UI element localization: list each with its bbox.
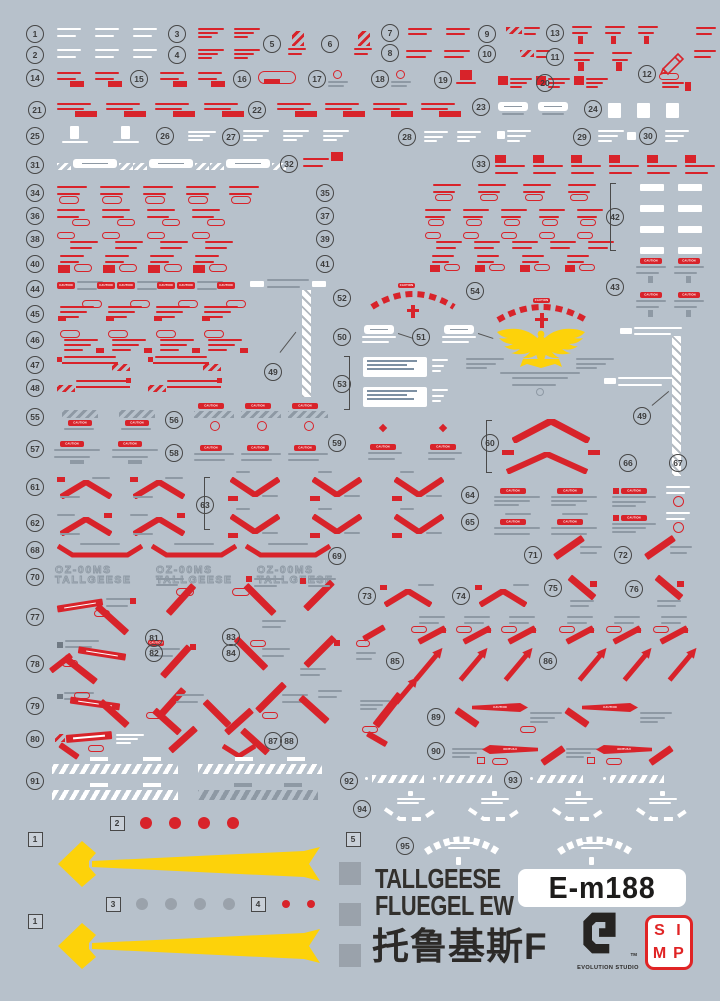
- micro-red-text-decal: [95, 72, 119, 80]
- white-block-decal: [660, 791, 665, 796]
- red-diagonal-stripe-decal: [95, 604, 129, 636]
- boxed-number-marker: 3: [106, 897, 121, 912]
- circled-number-marker: 60: [481, 434, 499, 452]
- micro-red-text-decal: [539, 209, 565, 218]
- red-diagonal-stripe-decal: [648, 745, 673, 766]
- striped-bar-decal: [52, 790, 178, 800]
- white-block-decal: [640, 247, 664, 254]
- micro-gray-text-decal: [530, 712, 562, 723]
- striped-bar-decal: [52, 764, 178, 774]
- dot-decal: [140, 817, 152, 829]
- micro-gray-text-decal: [505, 513, 531, 517]
- circled-number-marker: 51: [412, 328, 430, 346]
- simp-logo: S I M P: [645, 915, 693, 970]
- micro-gray-text-decal: [551, 527, 597, 535]
- red-pill-outline-decal: [520, 726, 536, 733]
- red-block-decal: [75, 111, 97, 117]
- micro-gray-text-decal: [661, 616, 687, 624]
- red-pill-outline-decal: [145, 196, 165, 204]
- red-block-decal: [310, 533, 320, 538]
- circled-number-marker: 25: [26, 127, 44, 145]
- circled-number-marker: 37: [316, 207, 334, 225]
- circled-number-marker: 18: [371, 70, 389, 88]
- circled-number-marker: 56: [165, 411, 183, 429]
- micro-white-text-decal: [432, 359, 448, 372]
- red-pill-outline-decal: [231, 196, 251, 204]
- circled-number-marker: 1: [26, 25, 44, 43]
- red-diagonal-stripe-decal: [303, 635, 336, 668]
- caution-tag-decal: CAUTION: [621, 515, 647, 521]
- white-block-decal: [608, 103, 621, 118]
- white-spec-panel-decal: [363, 357, 427, 377]
- red-block-decal: [571, 155, 582, 163]
- caution-tag-decal: CAUTION: [217, 282, 235, 289]
- kit-name-chinese: 托鲁基斯F: [372, 916, 548, 970]
- red-swoosh-bar-decal: CAUTION: [582, 703, 638, 712]
- circled-number-marker: 65: [461, 513, 479, 531]
- red-arrow-decal: [665, 644, 701, 684]
- red-pill-outline-decal: [57, 232, 75, 239]
- circled-number-marker: 38: [26, 230, 44, 248]
- micro-red-text-decal: [155, 103, 189, 110]
- red-pill-outline-decal: [102, 196, 122, 204]
- micro-gray-text-decal: [318, 508, 332, 512]
- circled-number-marker: 50: [333, 328, 351, 346]
- micro-gray-text-decal: [674, 300, 704, 308]
- red-diagonal-stripe-decal: [654, 575, 683, 601]
- yellow-arrow-decal: [58, 920, 320, 972]
- caution-tag-decal: CAUTION: [247, 445, 269, 451]
- micro-gray-text-decal: [344, 495, 360, 499]
- red-pill-outline-decal: [74, 692, 90, 699]
- white-tag-decal: [73, 159, 117, 168]
- red-block-decal: [460, 70, 472, 80]
- micro-gray-text-decal: [60, 533, 80, 537]
- micro-gray-text-decal: [60, 496, 80, 500]
- red-block-decal: [686, 276, 691, 283]
- red-block-decal: [588, 450, 600, 455]
- circled-number-marker: 66: [619, 454, 637, 472]
- red-block-decal: [520, 265, 530, 272]
- gray-square-swatch: [339, 903, 361, 926]
- white-block-decal: [620, 328, 632, 334]
- red-pill-outline-decal: [653, 626, 669, 633]
- red-block-decal: [104, 513, 112, 518]
- micro-red-text-decal: [160, 339, 194, 351]
- white-tag-decal: [498, 102, 528, 111]
- red-block-decal: [76, 386, 130, 388]
- segment-dot-decal: [603, 777, 606, 780]
- micro-gray-text-decal: [502, 113, 524, 117]
- red-pill-outline-decal: [580, 219, 596, 226]
- kit-name-english-line2: FLUEGEL EW: [375, 889, 514, 922]
- red-hatch-decal: [148, 385, 166, 392]
- circled-number-marker: 31: [26, 156, 44, 174]
- leader-line: [652, 391, 670, 406]
- red-chevron-down-decal: [230, 477, 280, 497]
- red-pill-outline-decal: [579, 264, 595, 271]
- gray-hatch-decal: [62, 410, 98, 418]
- red-block-decal: [62, 362, 118, 364]
- red-chevron-up-decal: [512, 419, 590, 443]
- caution-tag-decal: CAUTION: [200, 445, 222, 451]
- micro-gray-text-decal: [112, 449, 158, 458]
- leader-line: [478, 333, 494, 339]
- red-block-decal: [683, 628, 688, 633]
- caution-tag-decal: CAUTION: [245, 403, 271, 409]
- micro-red-text-decal: [76, 380, 128, 384]
- caution-tag-decal: CAUTION: [557, 488, 583, 494]
- red-pill-outline-decal: [411, 626, 427, 633]
- circled-number-marker: 33: [472, 155, 490, 173]
- micro-gray-text-decal: [562, 513, 588, 517]
- micro-gray-text-decal: [428, 452, 462, 460]
- red-block-decal: [439, 111, 461, 117]
- micro-gray-text-decal: [657, 600, 681, 607]
- red-block-decal: [228, 533, 238, 538]
- red-block-decal: [486, 628, 491, 633]
- red-hatch-decal: [203, 364, 221, 371]
- simp-letter: M: [653, 946, 666, 962]
- segment-dot-decal: [433, 777, 436, 780]
- circled-number-marker: 59: [328, 434, 346, 452]
- circled-number-marker: 15: [130, 70, 148, 88]
- micro-gray-text-decal: [262, 532, 278, 536]
- micro-gray-text-decal: [426, 495, 442, 499]
- red-block-decal: [590, 581, 597, 587]
- micro-white-text-decal: [665, 130, 689, 142]
- red-chevron-down-decal: [312, 514, 362, 534]
- caution-tag-decal: CAUTION: [117, 282, 135, 289]
- red-pill-outline-decal: [250, 640, 266, 647]
- circled-number-marker: 9: [478, 25, 496, 43]
- micro-red-text-decal: [574, 52, 594, 61]
- red-ring-decal: [536, 388, 544, 396]
- micro-red-text-decal: [421, 103, 455, 110]
- micro-gray-text-decal: [466, 358, 504, 369]
- circled-number-marker: 12: [638, 65, 656, 83]
- micro-gray-text-decal: [464, 616, 490, 624]
- circled-number-marker: 4: [168, 46, 186, 64]
- studio-name: EVOLUTION STUDIO: [571, 965, 645, 971]
- micro-white-text-decal: [424, 131, 448, 142]
- micro-red-text-decal: [408, 28, 432, 35]
- micro-white-text-decal: [666, 512, 690, 520]
- micro-red-text-decal: [57, 186, 87, 195]
- red-block-decal: [264, 79, 280, 83]
- red-pill-outline-decal: [59, 196, 79, 204]
- circled-number-marker: 49: [633, 407, 651, 425]
- micro-red-text-decal: [510, 78, 532, 88]
- circled-number-marker: 5: [263, 35, 281, 53]
- micro-white-text-decal: [243, 130, 269, 141]
- circled-number-marker: 26: [156, 127, 174, 145]
- micro-red-text-decal: [100, 186, 130, 195]
- red-hatch-decal: [358, 31, 370, 46]
- circled-number-marker: 79: [26, 697, 44, 715]
- oz-00ms-tallgeese-text-decal: OZ-00MSTALLGEESE: [55, 566, 147, 588]
- circled-number-marker: 70: [26, 568, 44, 586]
- caution-tag-decal: CAUTION: [97, 282, 115, 289]
- red-block-decal: [644, 36, 649, 44]
- red-block-decal: [609, 155, 620, 163]
- red-swoosh-bar-decal: CAUTION: [482, 745, 538, 754]
- micro-red-text-decal: [57, 72, 81, 80]
- gray-square-swatch: [339, 862, 361, 885]
- micro-white-text-decal: [362, 336, 396, 343]
- micro-red-text-decal: [64, 339, 98, 351]
- red-hatch-decal: [506, 27, 522, 34]
- striped-bar-label-decal: [90, 783, 108, 787]
- micro-white-text-decal: [634, 327, 682, 335]
- red-swoosh-bar-decal: CAUTION: [596, 745, 652, 754]
- red-pill-outline-decal: [577, 232, 593, 239]
- white-block-decal: [497, 131, 505, 139]
- white-block-decal: [640, 226, 664, 233]
- red-block-decal: [240, 348, 248, 353]
- red-block-decal: [70, 81, 84, 87]
- red-pill-outline-decal: [542, 219, 558, 226]
- red-pill-outline-decal: [570, 194, 588, 201]
- red-block-decal: [126, 378, 131, 383]
- striped-bar-label-decal: [90, 757, 108, 761]
- micro-white-text-decal: [457, 131, 481, 142]
- circled-number-marker: 46: [26, 331, 44, 349]
- red-pill-outline-decal: [108, 330, 128, 338]
- circled-number-marker: 42: [606, 208, 624, 226]
- red-block-decal: [533, 155, 544, 163]
- red-block-decal: [300, 578, 306, 584]
- micro-red-text-decal: [609, 165, 639, 174]
- red-pill-outline-decal: [466, 219, 482, 226]
- red-pill-outline-decal: [489, 264, 505, 271]
- white-block-decal: [492, 791, 497, 796]
- caution-tag-decal: CAUTION: [198, 403, 224, 409]
- micro-white-text-decal: [113, 141, 139, 146]
- micro-red-text-decal: [160, 72, 184, 80]
- red-block-decal: [173, 111, 195, 117]
- red-block-decal: [334, 640, 340, 646]
- circled-number-marker: 16: [233, 70, 251, 88]
- micro-gray-text-decal: [674, 266, 704, 274]
- micro-red-text-decal: [195, 255, 219, 263]
- red-block-decal: [616, 62, 622, 71]
- micro-gray-text-decal: [419, 616, 445, 624]
- micro-red-text-decal: [234, 49, 260, 59]
- micro-red-text-decal: [204, 103, 238, 110]
- circled-number-marker: 63: [196, 496, 214, 514]
- red-block-decal: [96, 348, 104, 353]
- red-block-decal: [193, 265, 205, 273]
- micro-gray-text-decal: [174, 543, 214, 547]
- micro-red-text-decal: [60, 255, 84, 263]
- red-block-decal: [103, 265, 115, 273]
- red-block-decal: [392, 533, 402, 538]
- red-block-decal: [685, 82, 691, 91]
- boxed-number-marker: 1: [28, 914, 43, 929]
- circled-number-marker: 74: [452, 587, 470, 605]
- micro-gray-text-decal: [400, 471, 414, 475]
- white-block-decal: [678, 184, 702, 191]
- white-block-decal: [678, 247, 702, 254]
- micro-red-text-decal: [474, 241, 500, 249]
- circled-number-marker: 3: [168, 25, 186, 43]
- red-block-decal: [58, 316, 66, 321]
- micro-white-text-decal: [133, 28, 157, 37]
- red-block-decal: [190, 644, 196, 650]
- micro-white-text-decal: [618, 377, 674, 386]
- micro-red-text-decal: [567, 255, 589, 263]
- red-pill-outline-decal: [492, 758, 508, 765]
- circled-number-marker: 7: [381, 24, 399, 42]
- red-block-decal: [58, 265, 70, 273]
- caution-tag-decal: CAUTION: [430, 444, 456, 450]
- micro-red-text-decal: [106, 103, 140, 110]
- micro-white-text-decal: [565, 798, 593, 804]
- segment-dot-decal: [530, 777, 533, 780]
- segment-dot-decal: [365, 777, 368, 780]
- circled-number-marker: 49: [264, 363, 282, 381]
- micro-gray-text-decal: [612, 496, 656, 507]
- micro-gray-text-decal: [121, 428, 151, 433]
- circled-number-marker: 17: [308, 70, 326, 88]
- red-block-decal: [574, 76, 584, 85]
- micro-gray-text-decal: [262, 620, 286, 628]
- circled-number-marker: 10: [478, 45, 496, 63]
- micro-gray-text-decal: [156, 578, 184, 586]
- red-pill-outline-decal: [130, 300, 150, 308]
- red-block-decal: [177, 513, 185, 518]
- simp-letter: S: [654, 923, 665, 939]
- white-tag-decal: [149, 159, 193, 168]
- micro-white-text-decal: [95, 28, 119, 37]
- circled-number-marker: 6: [321, 35, 339, 53]
- decal-sheet: TALLGEESE FLUEGEL EW 托鲁基斯F E-m188 TM EVO…: [0, 0, 720, 1001]
- circled-number-marker: 23: [472, 98, 490, 116]
- circled-number-marker: 8: [381, 44, 399, 62]
- micro-gray-text-decal: [400, 508, 414, 512]
- micro-gray-text-decal: [356, 652, 376, 660]
- circled-number-marker: 68: [26, 541, 44, 559]
- circled-number-marker: 19: [434, 71, 452, 89]
- circled-number-marker: 47: [26, 356, 44, 374]
- micro-gray-text-decal: [570, 600, 594, 607]
- red-pill-outline-decal: [501, 232, 517, 239]
- red-block-decal: [686, 310, 691, 317]
- caution-tag-decal: CAUTION: [678, 258, 700, 264]
- circled-number-marker: 13: [546, 24, 564, 42]
- white-shallow-v-decal: [383, 806, 439, 822]
- red-ring-decal: [257, 421, 267, 431]
- evolution-studio-glyph-icon: [577, 911, 629, 955]
- circled-number-marker: 76: [625, 580, 643, 598]
- micro-gray-text-decal: [614, 616, 640, 624]
- striped-bar-decal: [198, 790, 318, 800]
- red-block-decal: [106, 316, 114, 321]
- caution-tag-decal: CAUTION: [292, 403, 318, 409]
- micro-white-text-decal: [62, 141, 88, 146]
- dot-decal: [194, 898, 206, 910]
- circled-number-marker: 58: [165, 444, 183, 462]
- gray-hatch-decal: [194, 411, 234, 418]
- micro-red-text-decal: [685, 165, 715, 174]
- micro-gray-text-decal: [267, 279, 309, 288]
- micro-red-text-decal: [501, 209, 527, 218]
- red-ring-decal: [396, 70, 405, 79]
- micro-gray-text-decal: [580, 546, 602, 554]
- red-block-decal: [173, 81, 187, 87]
- red-chevron-down-decal: [230, 514, 280, 534]
- kit-name-english-line1: TALLGEESE: [375, 862, 501, 895]
- white-block-decal: [640, 205, 664, 212]
- micro-red-text-decal: [112, 339, 146, 351]
- circled-number-marker: 67: [669, 454, 687, 472]
- micro-gray-text-decal: [513, 584, 529, 589]
- white-block-decal: [408, 791, 413, 796]
- red-block-decal: [495, 155, 506, 163]
- caution-tag-decal: CAUTION: [557, 519, 583, 525]
- circled-number-marker: 71: [524, 546, 542, 564]
- red-pill-outline-decal: [262, 712, 278, 719]
- red-block-decal: [211, 81, 225, 87]
- dot-decal: [282, 900, 290, 908]
- vertical-hatched-bar-decal: [302, 290, 311, 397]
- micro-gray-text-decal: [426, 532, 442, 536]
- red-block-decal: [613, 488, 619, 494]
- circled-number-marker: 2: [26, 46, 44, 64]
- micro-white-text-decal: [283, 130, 309, 141]
- micro-red-text-decal: [638, 26, 658, 34]
- white-hatch-decal: [57, 163, 71, 170]
- micro-white-text-decal: [57, 49, 81, 58]
- micro-red-text-decal: [205, 241, 233, 249]
- micro-red-text-decal: [524, 27, 540, 35]
- red-chevron-down-decal: [312, 477, 362, 497]
- micro-white-text-decal: [481, 798, 509, 804]
- red-block-decal: [531, 628, 536, 633]
- red-pill-outline-decal: [209, 264, 227, 272]
- micro-gray-text-decal: [670, 546, 692, 554]
- red-block-decal: [611, 36, 616, 44]
- red-pill-outline-decal: [525, 194, 543, 201]
- striped-bar-label-decal: [143, 783, 161, 787]
- white-block-decal: [604, 378, 616, 384]
- dot-decal: [136, 898, 148, 910]
- red-block-decal: [295, 111, 317, 117]
- micro-white-text-decal: [666, 486, 690, 494]
- caution-tag-decal: CAUTION: [157, 282, 175, 289]
- white-tag-decal: [444, 325, 474, 334]
- micro-red-text-decal: [533, 165, 563, 174]
- red-arrow-decal: [391, 673, 422, 707]
- red-chevron-up-decal: [384, 589, 432, 607]
- micro-red-text-decal: [586, 78, 608, 88]
- red-outline-box-decal: [587, 757, 595, 764]
- red-ring-decal: [673, 496, 684, 507]
- white-tag-decal: [364, 325, 394, 334]
- micro-red-text-decal: [147, 209, 175, 218]
- circled-number-marker: 92: [340, 772, 358, 790]
- micro-red-text-decal: [444, 50, 470, 58]
- micro-white-text-decal: [649, 798, 677, 804]
- micro-gray-text-decal: [318, 471, 332, 475]
- micro-white-text-decal: [442, 336, 476, 343]
- caution-tag-decal: CAUTION: [177, 282, 195, 289]
- micro-white-text-decal: [432, 389, 448, 402]
- micro-white-text-decal: [397, 798, 425, 804]
- red-pill-outline-decal: [164, 264, 182, 272]
- caution-tag-decal: CAUTION: [500, 488, 526, 494]
